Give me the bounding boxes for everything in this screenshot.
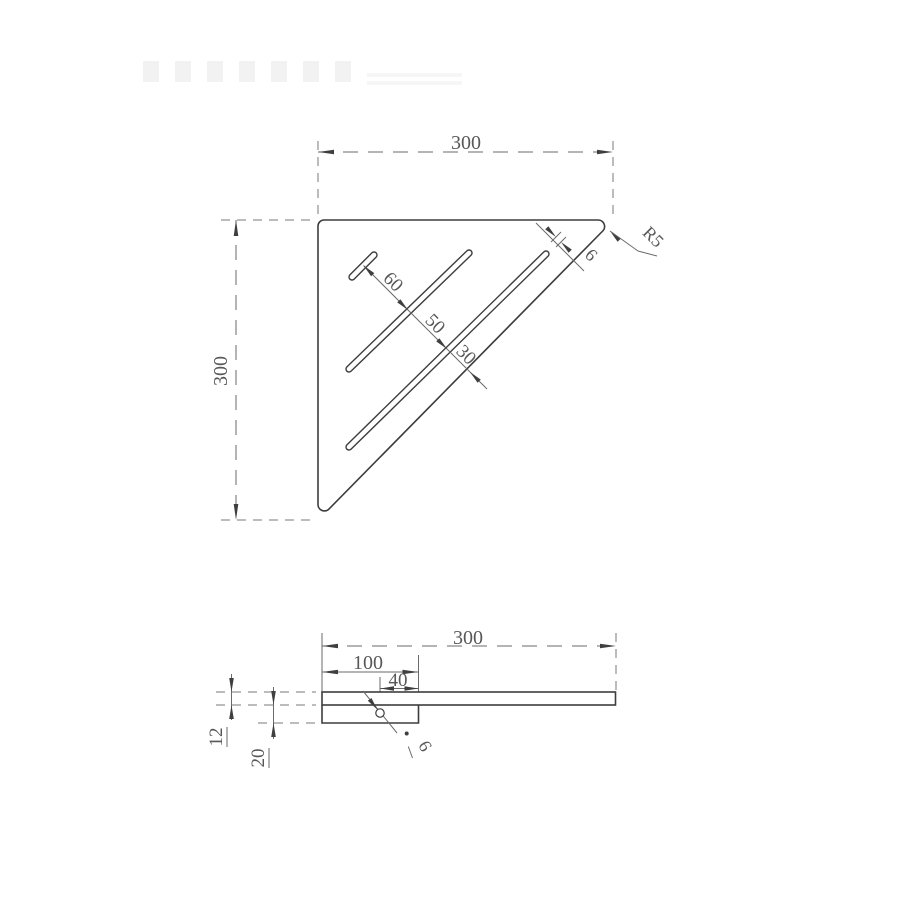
- arrowhead: [322, 670, 338, 675]
- dim-plate-thickness-12: 12: [206, 674, 316, 747]
- mounting-hole: [376, 709, 384, 717]
- dim-label-hole-diameter-group: 6: [414, 737, 436, 755]
- dim-label-hole-to-edge: 40: [389, 670, 408, 691]
- dim-hole-to-edge-40: 40: [380, 670, 419, 692]
- dim-label-slot-gap-2: 50: [421, 310, 449, 338]
- arrowhead: [229, 705, 234, 719]
- leader-landing: [638, 251, 657, 256]
- dim-label-slot-width-group: 6: [581, 245, 602, 266]
- mounting-bracket-side: [322, 705, 419, 723]
- watermark-block: [175, 61, 191, 82]
- dim-label-hole-diameter: 6: [414, 737, 436, 755]
- side-view: 300 100 40 12: [206, 627, 616, 768]
- dim-label-r5-group: R5: [639, 222, 668, 251]
- arrowhead: [397, 299, 408, 310]
- technical-drawing-page: 300 300: [0, 0, 900, 900]
- dimension-line: [536, 223, 584, 271]
- arrowhead: [470, 372, 481, 383]
- arrowhead: [318, 150, 334, 155]
- dim-label-width: 300: [451, 132, 481, 154]
- dim-slot-width-6: 6: [536, 223, 601, 271]
- watermark-smalltext-line: [367, 81, 462, 85]
- dim-label-plate-thickness: 12: [206, 728, 227, 747]
- top-view: 300 300: [210, 132, 668, 520]
- arrowhead: [229, 678, 234, 692]
- dim-label-bracket-height-group: 20: [248, 748, 269, 768]
- dim-label-slot-gap-1: 60: [379, 268, 407, 296]
- watermark-block: [271, 61, 287, 82]
- arrowhead: [436, 338, 447, 349]
- arrowhead: [545, 226, 556, 237]
- drawing-canvas: 300 300: [0, 0, 900, 900]
- arrowhead: [597, 150, 613, 155]
- dim-label-bracket-height: 20: [248, 749, 269, 768]
- dim-label-side-width: 300: [453, 627, 483, 649]
- dim-width-300: 300: [318, 132, 613, 216]
- dim-label-60-group: 60: [379, 268, 407, 296]
- watermark-block: [335, 61, 351, 82]
- leader-dot: [405, 732, 409, 736]
- dim-bracket-height-20: 20: [248, 687, 316, 768]
- watermark-smalltext-line: [367, 73, 462, 77]
- leader-landing: [408, 747, 412, 759]
- arrowhead: [600, 644, 616, 649]
- arrowhead: [271, 723, 276, 737]
- arrowhead: [234, 504, 239, 520]
- watermark-block: [207, 61, 223, 82]
- dim-label-corner-radius: R5: [639, 222, 668, 251]
- arrowhead: [322, 644, 338, 649]
- dim-label-bracket-length: 100: [353, 652, 383, 674]
- arrowhead: [234, 220, 239, 236]
- dim-label-height-group: 300: [210, 356, 232, 386]
- dim-label-slot-width: 6: [581, 245, 602, 266]
- watermark-block: [143, 61, 159, 82]
- watermark-block: [303, 61, 319, 82]
- watermark: [143, 61, 462, 85]
- arrowhead: [364, 266, 375, 277]
- arrowhead: [561, 242, 572, 253]
- dim-label-thickness-group: 12: [206, 727, 227, 747]
- leader-line: [610, 231, 638, 251]
- arrowhead: [271, 691, 276, 705]
- dim-label-50-group: 50: [421, 310, 449, 338]
- watermark-block: [239, 61, 255, 82]
- slot-3-inner: [349, 254, 546, 447]
- dim-corner-radius-r5: R5: [610, 222, 668, 256]
- dim-height-300: 300: [210, 220, 311, 520]
- dim-label-height: 300: [210, 356, 232, 386]
